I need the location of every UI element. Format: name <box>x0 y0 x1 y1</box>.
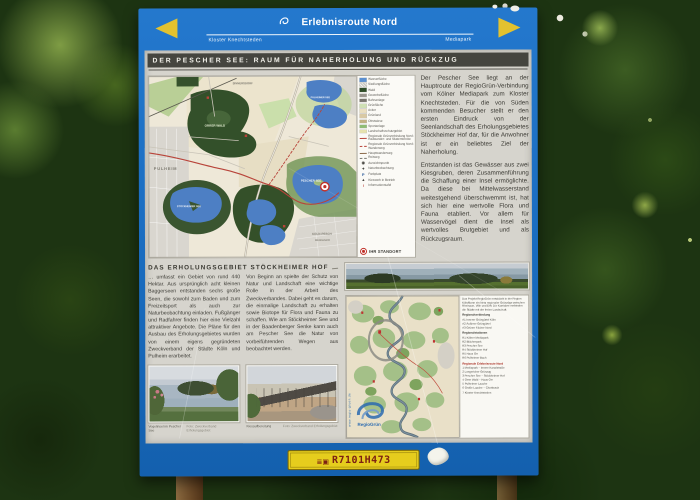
legend-item: PParkplatz <box>360 172 414 176</box>
legend-swatch <box>360 104 367 108</box>
legend-label: Hauptwanderweg <box>368 151 392 154</box>
legend-item: Wald <box>360 88 414 92</box>
legend-swatch <box>360 93 367 97</box>
map-label-pulheim: PULHEIM <box>154 166 178 171</box>
content-panel: DER PESCHER SEE: RAUM FÜR NAHERHOLUNG UN… <box>144 49 532 443</box>
gravel-plant-photo <box>246 365 337 422</box>
legend-swatch: ◉ <box>360 161 367 165</box>
map-label-sinnersdorf: SINNERSDORF <box>233 81 254 85</box>
frame-icon: ▣ <box>322 459 329 466</box>
destination-left: Kloster Knechtsteden <box>208 37 262 43</box>
photo-credit: Foto: Zweckverband Erholungsgebiet <box>187 424 240 432</box>
legend-label: Parkplatz <box>368 173 381 176</box>
legend-item: Siedlungsfläche <box>360 83 414 87</box>
legend-swatch <box>360 109 367 113</box>
legend-item: Gewerbefläche <box>360 93 414 97</box>
map-label-pescher-see: PESCHER SEE <box>301 179 322 183</box>
section-text-columns: … umfasst ein Gebiet von rund 440 Hektar… <box>148 274 338 361</box>
legend-label: Regionale Grünverbindung Nord: Radwander… <box>368 135 414 142</box>
area-map: PULHEIM SINNERSDORF ORRER WALD PULHEIMER… <box>148 75 416 259</box>
legend-swatch <box>360 158 367 159</box>
region-legend-item: R6 Pulheimer Bach <box>462 357 526 361</box>
region-legend-intro: Das Projekt RegioGrün entwickelt in der … <box>462 298 526 313</box>
legend-swatch: i <box>360 184 367 188</box>
map-legend: WasserflächeSiedlungsflächeWaldGewerbefl… <box>357 76 415 257</box>
map-label-koeln-pesch: KÖLN-PESCH <box>312 231 332 236</box>
legend-item: iInformationstafel <box>360 184 414 188</box>
region-legend-item: A3 Grüner Fächer Nord <box>462 326 526 330</box>
legend-label: Wasserfläche <box>368 78 387 81</box>
region-legend-item: 7 Kloster Knechtsteden <box>462 391 526 395</box>
legend-swatch <box>360 99 367 103</box>
section-heading: DAS ERHOLUNGSGEBIET STÖCKHEIMER HOF <box>148 264 338 271</box>
page-title: DER PESCHER SEE: RAUM FÜR NAHERHOLUNG UN… <box>148 53 529 68</box>
region-map-legend: Das Projekt RegioGrün entwickelt in der … <box>459 296 528 438</box>
legend-swatch: ✦ <box>360 167 367 171</box>
legend-label: Landschaftsschutzgebiet <box>368 130 402 133</box>
section-heading-line <box>332 268 339 269</box>
legend-label: Sportanlage <box>368 125 385 128</box>
legend-swatch <box>360 114 367 118</box>
legend-swatch <box>360 153 367 154</box>
legend-label: Grünland <box>368 114 381 117</box>
legend-item: ✦Naturbeobachtung <box>360 167 414 171</box>
legend-swatch <box>360 146 367 147</box>
regiogruen-logo: RegioGrün <box>353 393 387 427</box>
region-legend-sections: RegionalverbindungA1 Innerer Grüngürtel … <box>462 314 526 395</box>
your-location-label: IHR STANDORT <box>369 249 401 254</box>
photo-row: Vogelinsel im Pescher See Foto: Zweckver… <box>148 365 338 432</box>
section-heading-text: DAS ERHOLUNGSGEBIET STÖCKHEIMER HOF <box>148 264 329 271</box>
sticker-icons: ≣▣ <box>316 451 329 469</box>
intro-text-column: Der Pescher See liegt an der Hauptroute … <box>421 75 529 258</box>
legend-item: Bahnanlage <box>360 99 414 103</box>
legend-swatch <box>360 130 367 134</box>
panorama-photo <box>345 263 529 290</box>
legend-label: Acker <box>368 109 376 112</box>
legend-label: Regionale Grünverbindung Nord: Wanderweg <box>368 143 414 150</box>
map-label-mengenich: MENGENICH <box>315 239 330 242</box>
regiogruen-logo-text: RegioGrün <box>357 422 381 427</box>
map-label-stoeckheimer-see: STÖCKHEIMER SEE <box>177 205 201 208</box>
legend-swatch <box>360 125 367 129</box>
legend-label: Bahnanlage <box>368 99 385 102</box>
bottom-row: DAS ERHOLUNGSGEBIET STÖCKHEIMER HOF … um… <box>148 262 529 440</box>
bird-dropping <box>426 446 450 467</box>
route-header: Erlebnisroute Nord Kloster Knechtsteden … <box>138 7 537 50</box>
map-label-orrer-wald: ORRER WALD <box>205 124 226 128</box>
sign-footer: ≣▣ R7101H473 <box>140 442 539 476</box>
legend-swatch <box>360 88 367 92</box>
map-label-lake-ne: PULHEIMER SEE <box>311 96 331 99</box>
legend-item: Landschaftsschutzgebiet <box>360 130 414 134</box>
legend-item: ◉Aussichtspunkt <box>360 161 414 165</box>
regiogruen-url: www.regio-gruen.de <box>347 393 351 427</box>
legend-label: Obstwiese <box>368 120 382 123</box>
section-column-1: … umfasst ein Gebiet von rund 440 Hektar… <box>148 274 240 360</box>
legend-item: Acker <box>360 109 414 113</box>
intro-paragraph-1: Der Pescher See liegt an der Hauptroute … <box>421 75 529 157</box>
sticker-code: R7101H473 <box>332 454 391 465</box>
legend-item: Grünfläche <box>360 104 414 108</box>
photo-figure-gravel: Kiesaufbereitung Foto: Zweckverband Erho… <box>246 365 337 432</box>
bottom-right-column: RegioGrün www.regio-gruen.de Das Projekt… <box>345 262 529 439</box>
legend-label: Aussichtspunkt <box>368 162 389 165</box>
legend-label: Kieswerk in Betrieb <box>368 178 394 181</box>
legend-item: Grünland <box>360 114 414 118</box>
page-title-text: DER PESCHER SEE: RAUM FÜR NAHERHOLUNG UN… <box>153 56 459 64</box>
photo-credit: Foto: Zweckverband Erholungsgebiet <box>283 424 338 428</box>
white-speck <box>510 6 519 12</box>
registration-sticker: ≣▣ R7101H473 <box>288 450 420 470</box>
section-column-2: Von Beginn an spielte der Schutz von Nat… <box>246 274 338 360</box>
area-map-graphic: PULHEIM SINNERSDORF ORRER WALD PULHEIMER… <box>149 76 357 258</box>
photo-caption: Kiesaufbereitung <box>246 424 271 428</box>
legend-swatch: ▲ <box>360 178 367 182</box>
header-divider <box>206 34 473 36</box>
regiogruen-swirl-icon <box>278 16 289 30</box>
lake-island-photo <box>148 365 239 422</box>
route-title: Erlebnisroute Nord <box>138 15 537 30</box>
legend-swatch <box>360 78 367 82</box>
legend-label: Wald <box>368 88 375 91</box>
information-sign: Erlebnisroute Nord Kloster Knechtsteden … <box>138 7 538 476</box>
map-legend-items: WasserflächeSiedlungsflächeWaldGewerbefl… <box>360 78 414 190</box>
outdoor-scene: Erlebnisroute Nord Kloster Knechtsteden … <box>0 0 700 500</box>
legend-label: Reitweg <box>368 156 379 159</box>
legend-label: Siedlungsfläche <box>368 83 390 86</box>
region-map-box: RegioGrün www.regio-gruen.de Das Projekt… <box>345 295 529 439</box>
destination-right: Mediapark <box>445 37 471 43</box>
legend-label: Grünfläche <box>368 104 383 107</box>
bottom-left-column: DAS ERHOLUNGSGEBIET STÖCKHEIMER HOF … um… <box>148 262 338 439</box>
intro-paragraph-2: Entstanden ist das Gewässer aus zwei Kie… <box>421 161 529 243</box>
legend-item: Hauptwanderweg <box>360 151 414 154</box>
legend-swatch <box>360 119 367 123</box>
photo-caption: Vogelinsel im Pescher See <box>148 424 186 432</box>
your-location-icon <box>360 248 367 255</box>
legend-label: Naturbeobachtung <box>368 167 393 170</box>
title-underline <box>149 69 528 71</box>
legend-swatch <box>360 138 367 139</box>
legend-item: Wasserfläche <box>360 78 414 82</box>
route-name: Erlebnisroute Nord <box>301 17 397 28</box>
legend-label: Informationstafel <box>368 184 391 187</box>
legend-swatch <box>360 83 367 87</box>
legend-label: Gewerbefläche <box>368 94 389 97</box>
top-row: PULHEIM SINNERSDORF ORRER WALD PULHEIMER… <box>148 75 529 259</box>
legend-item: Regionale Grünverbindung Nord: Wanderweg <box>360 143 414 150</box>
white-speck <box>492 5 497 9</box>
region-map: RegioGrün www.regio-gruen.de <box>346 296 459 438</box>
your-location-entry: IHR STANDORT <box>360 246 414 255</box>
legend-item: ▲Kieswerk in Betrieb <box>360 178 414 182</box>
photo-figure-lake: Vogelinsel im Pescher See Foto: Zweckver… <box>148 365 239 432</box>
legend-item: Reitweg <box>360 156 414 159</box>
legend-swatch: P <box>360 173 367 177</box>
legend-item: Obstwiese <box>360 119 414 123</box>
legend-item: Sportanlage <box>360 124 414 128</box>
legend-item: Regionale Grünverbindung Nord: Radwander… <box>360 135 414 142</box>
